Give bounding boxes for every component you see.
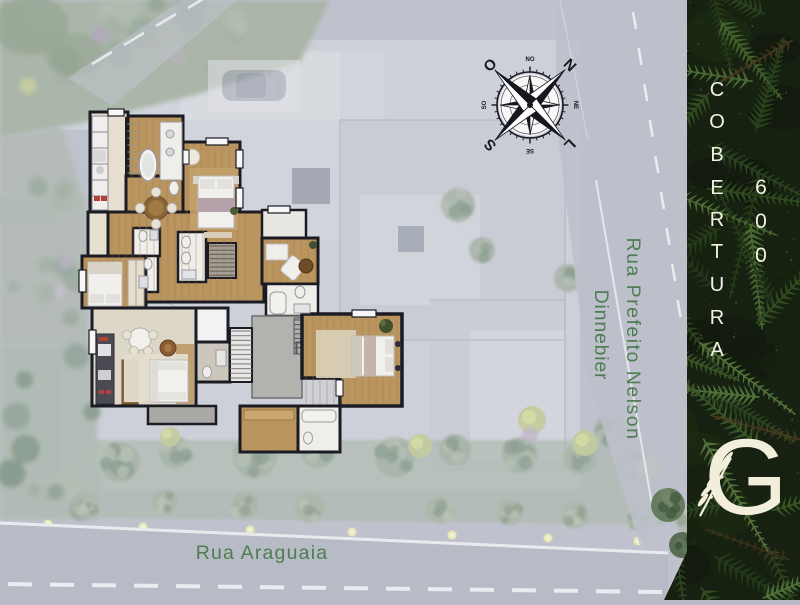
svg-text:SO: SO [482, 100, 488, 109]
svg-text:C: C [710, 79, 724, 101]
svg-text:NE: NE [572, 101, 578, 109]
svg-text:0: 0 [755, 210, 767, 233]
svg-text:0: 0 [755, 244, 767, 267]
svg-text:R: R [710, 209, 724, 231]
svg-text:A: A [710, 339, 724, 361]
svg-text:U: U [710, 274, 724, 296]
svg-text:6: 6 [755, 176, 767, 199]
svg-text:SE: SE [526, 147, 534, 153]
svg-text:R: R [710, 307, 724, 329]
svg-text:Rua Araguaia: Rua Araguaia [196, 542, 329, 564]
svg-text:Rua Prefeito Nelson: Rua Prefeito Nelson [622, 237, 644, 440]
svg-text:B: B [710, 144, 723, 166]
svg-text:T: T [711, 241, 723, 263]
svg-text:O: O [709, 111, 725, 133]
svg-text:NO: NO [526, 57, 535, 63]
svg-text:E: E [710, 177, 723, 199]
svg-text:Dinnebier: Dinnebier [590, 290, 612, 381]
